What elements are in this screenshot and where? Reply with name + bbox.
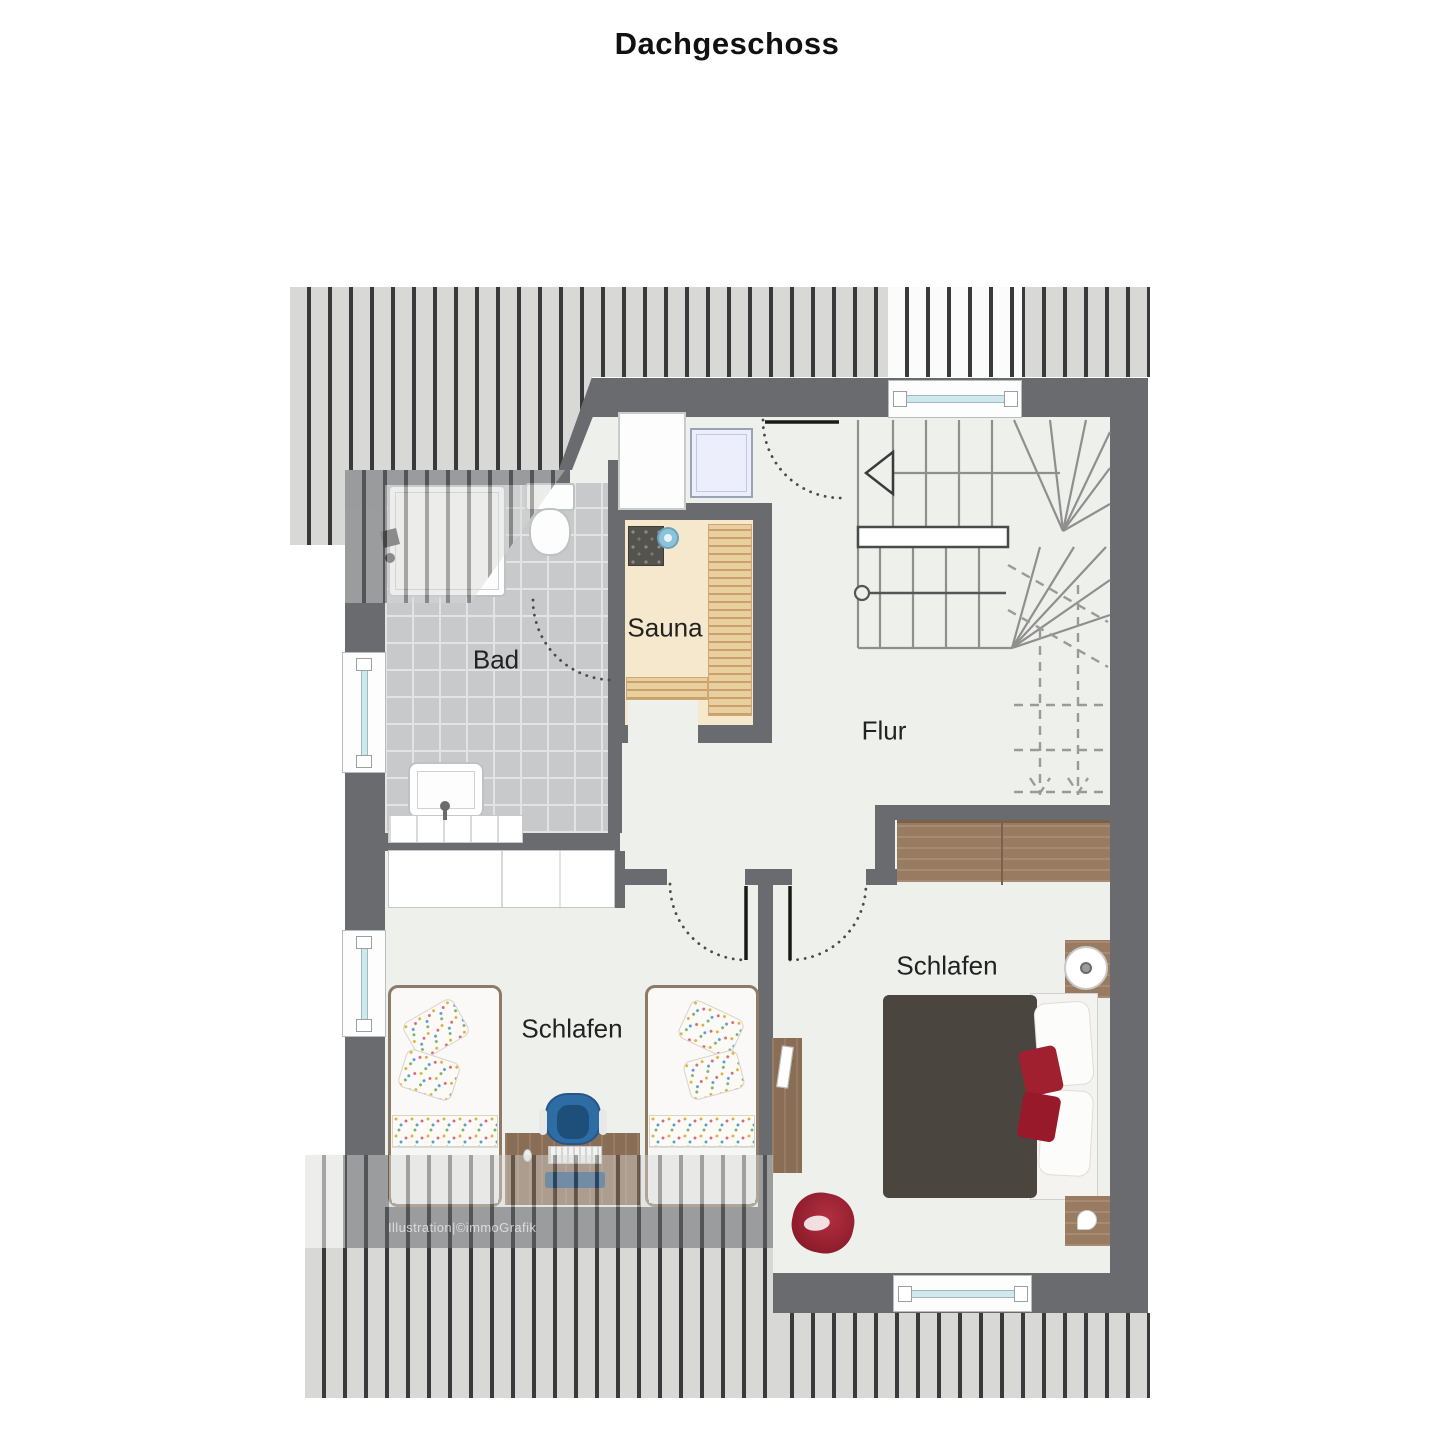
room-label-sauna: Sauna xyxy=(627,613,702,644)
room-label-schlafen-right: Schlafen xyxy=(896,951,997,982)
illustration-credit: Illustration|©immoGrafik xyxy=(388,1220,536,1235)
door-leaves xyxy=(746,422,839,960)
room-label-bad: Bad xyxy=(473,645,519,676)
floor-plan-page: Dachgeschoss xyxy=(0,0,1440,1440)
roof-window-patch xyxy=(888,287,1022,377)
door-arc-bedroom-right xyxy=(790,884,866,960)
door-arc-bedroom-left xyxy=(670,884,746,960)
roof-hatching-top-left xyxy=(290,377,592,470)
door-swing-arcs xyxy=(533,420,866,960)
roof-overlay-bedroom xyxy=(305,1155,773,1248)
room-label-flur: Flur xyxy=(862,716,907,747)
roof-hatching-left-step xyxy=(290,470,345,545)
roof-hatching-bottom-right xyxy=(773,1313,1150,1398)
door-arc-bathroom xyxy=(533,600,613,680)
door-arc-hall xyxy=(763,420,841,498)
stair-direction-arrow xyxy=(866,452,893,494)
stair-handrail xyxy=(858,527,1008,547)
room-label-schlafen-left: Schlafen xyxy=(521,1014,622,1045)
washbasin-faucet xyxy=(440,801,450,820)
stair-newel xyxy=(855,586,869,600)
roof-hatching-bottom-left xyxy=(305,1248,773,1398)
